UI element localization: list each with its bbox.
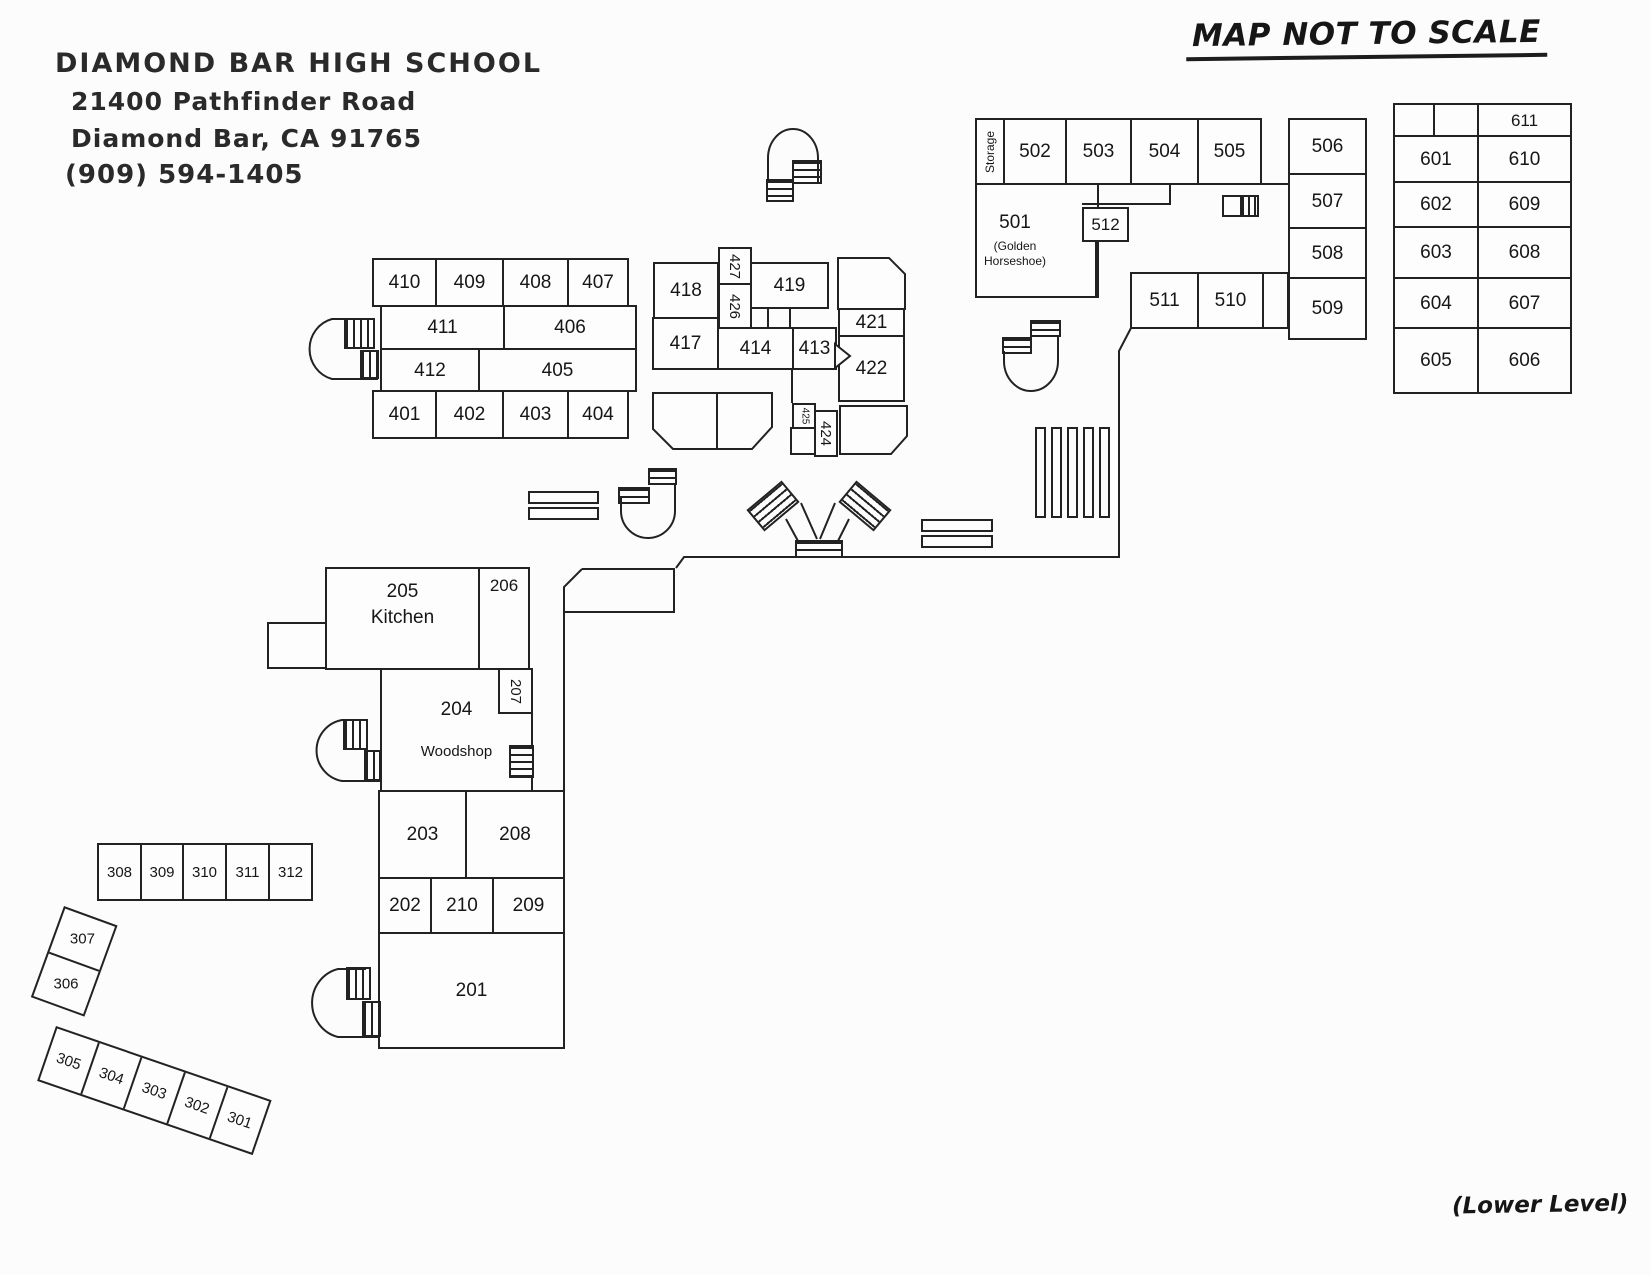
school-name: DIAMOND BAR HIGH SCHOOL <box>55 48 542 79</box>
room-label: 609 <box>1509 195 1541 214</box>
room-label: 427 <box>728 253 743 278</box>
stairs-treads-icon <box>362 1001 381 1037</box>
room-label: 309 <box>149 865 174 880</box>
room-label: 210 <box>446 896 478 915</box>
room-label: 416 <box>670 409 702 428</box>
room-412: 412 <box>380 348 480 392</box>
stairs-treads-icon <box>344 318 375 349</box>
room-label: 506 <box>1312 137 1344 156</box>
room-602: 602 <box>1393 181 1479 228</box>
room-label: 411 <box>427 318 457 337</box>
room-207: 207 <box>498 668 533 714</box>
stairs-treads-icon <box>346 967 371 1000</box>
room-414: 414 <box>717 327 794 370</box>
room-610: 610 <box>1477 135 1572 183</box>
room-label: 504 <box>1149 142 1181 161</box>
walkway-line <box>564 569 674 612</box>
room-label: 507 <box>1312 192 1344 211</box>
stairs-treads-icon <box>360 350 379 379</box>
room-label: 508 <box>1312 244 1344 263</box>
room-label: 420 <box>856 274 888 293</box>
room-blank2 <box>1262 272 1289 329</box>
room-501: 501(Golden Horseshoe) <box>975 183 1099 298</box>
amphitheater-steps-right <box>838 480 891 531</box>
room-label: 412 <box>414 361 446 380</box>
room-606: 606 <box>1477 327 1572 394</box>
room-418: 418 <box>653 262 719 319</box>
room-label: 202 <box>389 896 421 915</box>
room-507: 507 <box>1288 173 1367 229</box>
room-label: 407 <box>582 273 614 292</box>
room-605: 605 <box>1393 327 1479 394</box>
room-label: 205 <box>387 582 419 601</box>
room-label: 424 <box>819 421 834 446</box>
room-308: 308 <box>97 843 142 901</box>
room-407: 407 <box>567 258 629 307</box>
room-608: 608 <box>1477 226 1572 279</box>
bench <box>528 491 599 504</box>
room-601: 601 <box>1393 135 1479 183</box>
room-label: 417 <box>670 334 702 353</box>
room-208: 208 <box>465 790 565 879</box>
room-label: 208 <box>499 825 531 844</box>
room-label: 413 <box>799 339 831 358</box>
stairs-treads-icon <box>1002 337 1032 354</box>
stairs-treads-icon <box>343 719 368 750</box>
room-408: 408 <box>502 258 569 307</box>
room-201: 201 <box>378 932 565 1049</box>
room-label: 310 <box>192 865 217 880</box>
room-label: 608 <box>1509 243 1541 262</box>
room-label: 410 <box>389 273 421 292</box>
room-607: 607 <box>1477 277 1572 329</box>
room-409: 409 <box>435 258 504 307</box>
room-420: 420 <box>838 258 905 309</box>
railing-bar <box>1051 427 1062 518</box>
room-427: 427 <box>718 247 752 285</box>
room-sublabel: Kitchen <box>371 607 434 629</box>
room-label: 611 <box>1511 112 1538 129</box>
room-401: 401 <box>372 390 437 439</box>
room-label: 303 <box>140 1078 169 1102</box>
room-205: 205Kitchen <box>325 567 480 670</box>
room-508: 508 <box>1288 227 1367 279</box>
room-label: 425 <box>799 408 809 425</box>
bench <box>921 535 993 548</box>
room-label: 307 <box>70 931 95 948</box>
room-502: 502 <box>1003 118 1067 185</box>
room-storage: Storage <box>975 118 1005 185</box>
room-label: 408 <box>520 273 552 292</box>
stairs-icon <box>1222 195 1259 217</box>
amphitheater-lines <box>786 503 849 541</box>
room-label: 308 <box>107 865 132 880</box>
room-419: 419 <box>750 262 829 309</box>
room-505: 505 <box>1197 118 1262 185</box>
room-blank4 <box>1433 103 1479 137</box>
room-stub <box>267 622 327 669</box>
stairs-treads-icon <box>648 468 677 485</box>
room-label: 419 <box>774 276 806 295</box>
room-503: 503 <box>1065 118 1132 185</box>
room-label: 505 <box>1214 142 1246 161</box>
room-label: 403 <box>520 405 552 424</box>
room-603: 603 <box>1393 226 1479 279</box>
room-label: 423 <box>856 419 888 438</box>
room-label: 603 <box>1420 243 1452 262</box>
room-424: 424 <box>814 410 838 457</box>
room-label: 510 <box>1215 291 1247 310</box>
room-421: 421 <box>838 307 905 337</box>
room-label: 207 <box>508 678 523 703</box>
campus-map-page: DIAMOND BAR HIGH SCHOOL 21400 Pathfinder… <box>0 0 1650 1275</box>
room-label: 301 <box>225 1108 254 1132</box>
room-206: 206 <box>478 567 530 670</box>
room-404: 404 <box>567 390 629 439</box>
room-422: 422 <box>838 335 905 402</box>
railing-bar <box>1067 427 1078 518</box>
room-label: 604 <box>1420 294 1452 313</box>
building-307-306: 307 306 <box>31 906 118 1017</box>
room-label: 306 <box>54 975 79 992</box>
room-611: 611 <box>1477 103 1572 137</box>
room-blank3 <box>1393 103 1435 137</box>
room-label: 209 <box>513 896 545 915</box>
room-label: 418 <box>670 281 702 300</box>
room-410: 410 <box>372 258 437 307</box>
room-label: 414 <box>740 339 772 358</box>
room-402: 402 <box>435 390 504 439</box>
room-311: 311 <box>225 843 270 901</box>
stairs-hatch <box>1240 197 1257 215</box>
room-504: 504 <box>1130 118 1199 185</box>
room-label: 422 <box>856 359 888 378</box>
room-label: 305 <box>54 1049 83 1073</box>
room-label: 426 <box>728 293 743 318</box>
stairs-treads-icon <box>618 487 650 504</box>
room-label: 406 <box>554 318 586 337</box>
room-label: 203 <box>407 825 439 844</box>
room-label: 501 <box>999 213 1031 232</box>
school-address-line2: Diamond Bar, CA 91765 <box>71 124 542 153</box>
room-label: 610 <box>1509 150 1541 169</box>
room-202: 202 <box>378 877 432 934</box>
room-509: 509 <box>1288 277 1367 340</box>
room-label: 201 <box>456 981 488 1000</box>
room-label: 401 <box>389 405 421 424</box>
room-312: 312 <box>268 843 313 901</box>
room-309: 309 <box>140 843 184 901</box>
room-label: 405 <box>542 361 574 380</box>
room-label: 602 <box>1420 195 1452 214</box>
building-301-305: 305 304 303 302 301 <box>37 1026 271 1155</box>
room-416: 416 <box>653 393 719 443</box>
room-label: Storage <box>984 130 996 172</box>
room-label: 605 <box>1420 351 1452 370</box>
school-info: DIAMOND BAR HIGH SCHOOL 21400 Pathfinder… <box>55 48 542 190</box>
room-label: 509 <box>1312 299 1344 318</box>
school-address-line1: 21400 Pathfinder Road <box>71 87 542 116</box>
stairs-treads-icon <box>792 160 822 184</box>
room-label: 503 <box>1083 142 1115 161</box>
room-label: 206 <box>490 577 518 594</box>
room-511: 511 <box>1130 272 1199 329</box>
room-512: 512 <box>1082 207 1129 242</box>
room-sublabel: Woodshop <box>421 743 492 760</box>
room-label: 204 <box>441 700 473 719</box>
room-label: 502 <box>1019 142 1051 161</box>
room-604: 604 <box>1393 277 1479 329</box>
room-426: 426 <box>718 283 752 329</box>
amphitheater-steps-left <box>746 480 799 531</box>
room-210: 210 <box>430 877 494 934</box>
room-label: 404 <box>582 405 614 424</box>
room-506: 506 <box>1288 118 1367 175</box>
stairs-treads-icon <box>766 179 794 202</box>
room-label: 511 <box>1149 291 1179 310</box>
bench <box>921 519 993 532</box>
level-note: (Lower Level) <box>1452 1190 1629 1219</box>
room-label: 606 <box>1509 351 1541 370</box>
amphitheater-steps-center <box>795 540 843 558</box>
room-411: 411 <box>380 305 505 350</box>
room-406: 406 <box>503 305 637 350</box>
room-417: 417 <box>652 317 719 370</box>
room-510: 510 <box>1197 272 1264 329</box>
room-425: 425 <box>792 403 816 429</box>
room-209: 209 <box>492 877 565 934</box>
stairs-treads-icon <box>1030 320 1061 337</box>
room-label: 402 <box>454 405 486 424</box>
room-label: 415 <box>729 408 761 427</box>
woodshop-stairs-icon <box>509 745 534 778</box>
room-label: 607 <box>1509 294 1541 313</box>
room-label: 302 <box>182 1093 211 1117</box>
room-label: 304 <box>97 1064 126 1088</box>
railing-bar <box>1083 427 1094 518</box>
room-label: 421 <box>856 313 888 332</box>
room-405: 405 <box>478 348 637 392</box>
room-label: 409 <box>454 273 486 292</box>
room-label: 311 <box>236 865 260 880</box>
room-label: 312 <box>278 865 303 880</box>
map-title: MAP NOT TO SCALE <box>1186 14 1547 61</box>
room-label: 512 <box>1091 216 1119 233</box>
room-310: 310 <box>182 843 227 901</box>
railing-bar <box>1099 427 1110 518</box>
school-phone: (909) 594-1405 <box>65 160 542 190</box>
room-label: 601 <box>1420 150 1452 169</box>
room-203: 203 <box>378 790 467 879</box>
stairs-treads-icon <box>364 750 381 781</box>
room-423: 423 <box>840 406 904 450</box>
bench <box>528 507 599 520</box>
room-415: 415 <box>717 393 772 441</box>
room-blank1 <box>790 427 816 455</box>
room-sublabel: (Golden Horseshoe) <box>974 239 1056 269</box>
room-413: 413 <box>792 327 837 370</box>
walkway-line <box>564 569 582 790</box>
room-403: 403 <box>502 390 569 439</box>
room-609: 609 <box>1477 181 1572 228</box>
railing-bar <box>1035 427 1046 518</box>
